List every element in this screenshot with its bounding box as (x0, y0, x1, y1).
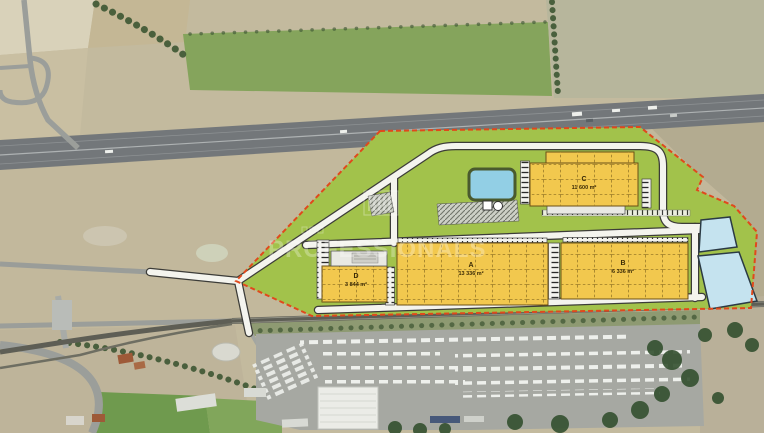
truck-stop-building (318, 387, 378, 429)
parking-hatched-central (437, 200, 519, 225)
watermark-text: PROFESSIONALS (268, 236, 486, 263)
retention-pond (469, 169, 515, 200)
building-d-area: 3 844 m² (345, 281, 367, 288)
building-d-label: D (353, 273, 358, 280)
tank-structure (494, 202, 503, 211)
building-b-label: B (620, 260, 625, 267)
building-c-area: 11 600 m² (572, 184, 597, 191)
building-a-area: 13 336 m² (458, 270, 483, 277)
map-canvas: C 11 600 m² A 13 336 m² B 6 336 m² D 3 8… (0, 0, 764, 433)
site-plan-map: C 11 600 m² A 13 336 m² B 6 336 m² D 3 8… (0, 0, 764, 433)
building-a-label: A (468, 262, 473, 269)
technical-structure (483, 201, 492, 210)
building-c-label: C (581, 176, 586, 183)
building-b-area: 6 336 m² (612, 268, 634, 275)
